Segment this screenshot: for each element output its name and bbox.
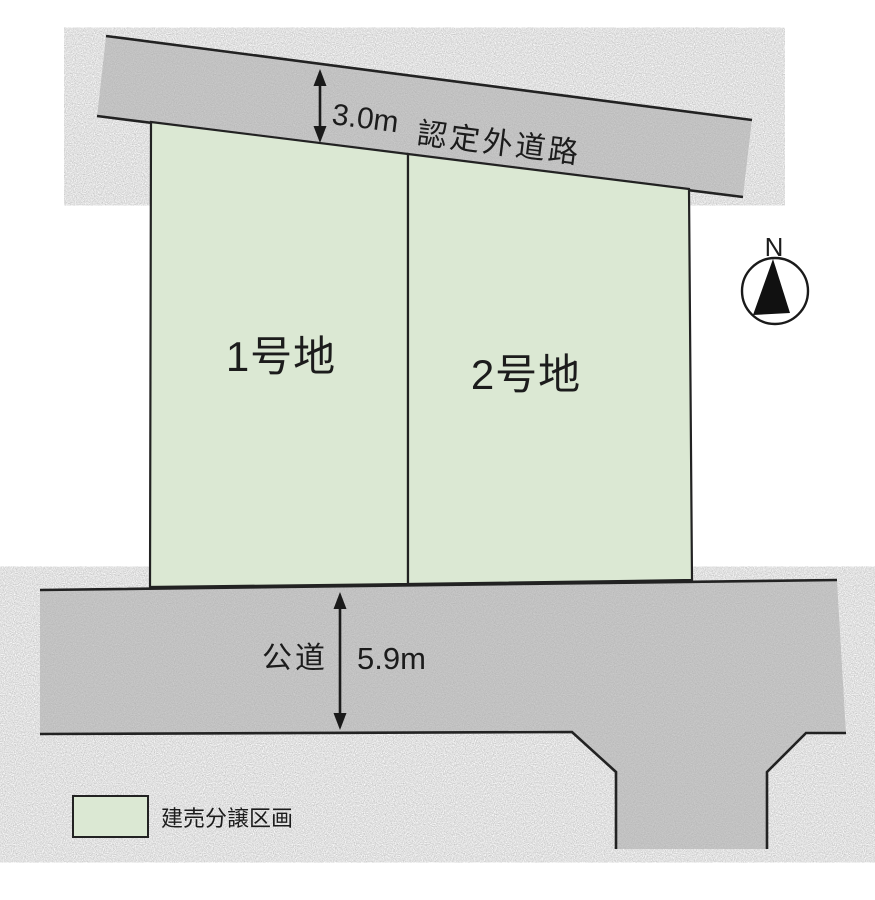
lower-road-width-label: 5.9m bbox=[357, 641, 426, 676]
plot-1: 1号地 bbox=[150, 122, 408, 587]
legend-label: 建売分譲区画 bbox=[161, 806, 293, 831]
plot-2: 2号地 bbox=[408, 154, 692, 584]
site-plan-canvas: 1号地 2号地 3.0m 認定外道路 公道 5.9m N bbox=[0, 0, 875, 900]
site-plan: 1号地 2号地 3.0m 認定外道路 公道 5.9m N bbox=[0, 0, 875, 900]
lower-road-name-label: 公道 bbox=[262, 642, 328, 675]
plot-2-label: 2号地 bbox=[471, 351, 581, 398]
plot-1-label: 1号地 bbox=[226, 333, 336, 380]
legend-swatch bbox=[73, 796, 148, 837]
